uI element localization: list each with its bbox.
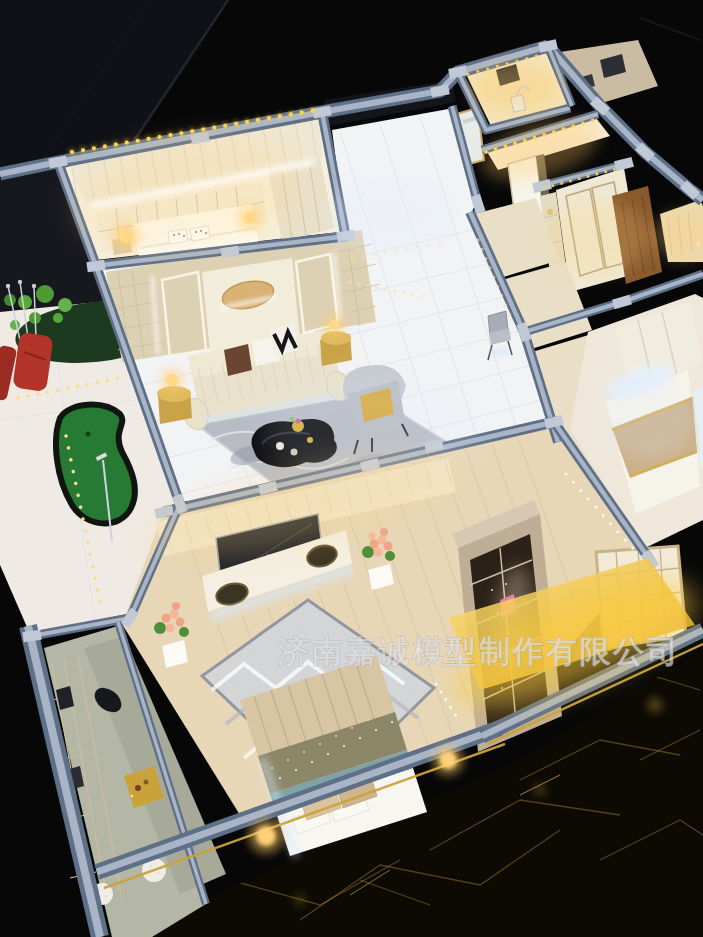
scene-svg: 济南嘉诚模型制作有限公司 [0,0,703,937]
watermark-text: 济南嘉诚模型制作有限公司 [277,633,680,669]
decor-bottle [547,209,553,215]
model-photo: 济南嘉诚模型制作有限公司 [0,0,703,937]
